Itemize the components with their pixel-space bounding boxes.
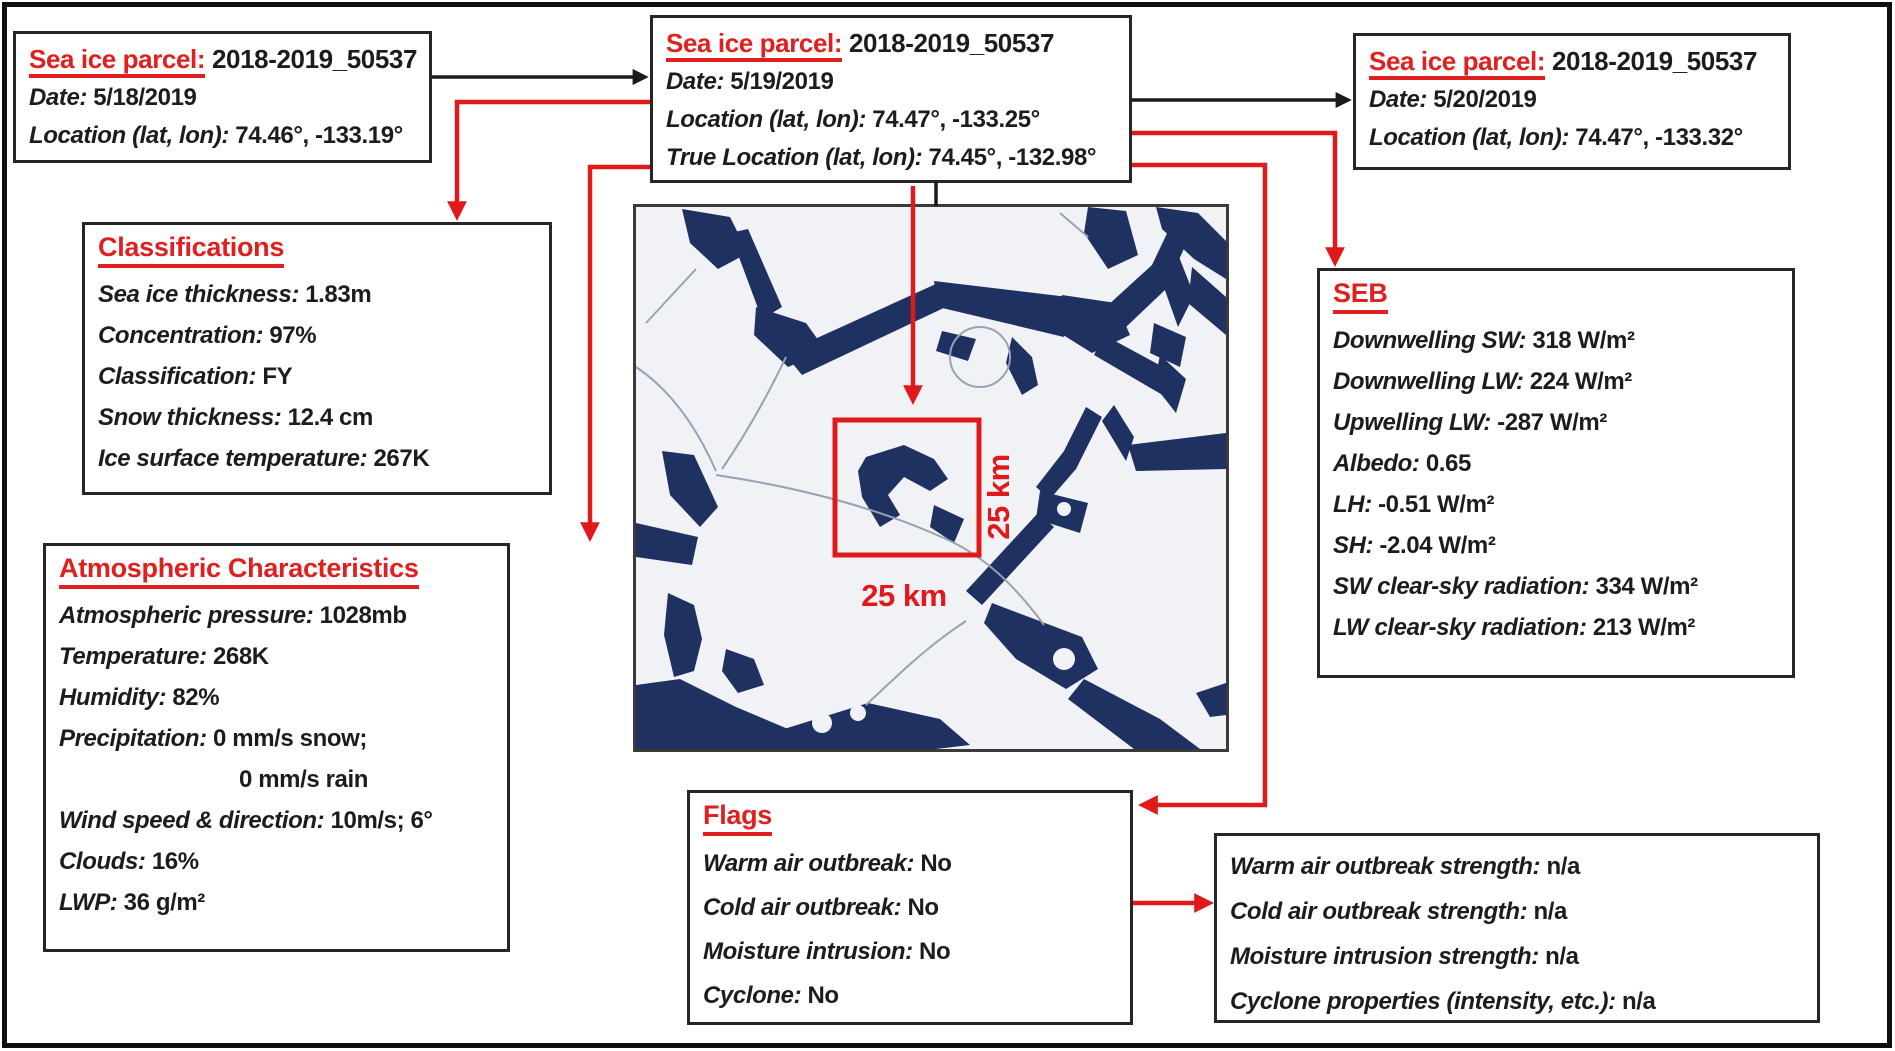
field-row-continuation: 0 mm/s rain	[59, 759, 494, 800]
parcel-title-value: 2018-2019_50537	[849, 28, 1054, 58]
strengths-box: Warm air outbreak strength: n/a Cold air…	[1214, 833, 1820, 1023]
field-row: Classification: FY	[98, 356, 536, 397]
field-row: Humidity: 82%	[59, 677, 494, 718]
field-row: LWP: 36 g/m²	[59, 882, 494, 923]
field-row: Moisture intrusion strength: n/a	[1230, 934, 1804, 979]
field-row: Ice surface temperature: 267K	[98, 438, 536, 479]
parcel-title-label: Sea ice parcel:	[666, 28, 842, 62]
field-row: Cyclone: No	[703, 974, 1117, 1018]
parcel-title-label: Sea ice parcel:	[1369, 46, 1545, 80]
field-row: Cold air outbreak strength: n/a	[1230, 889, 1804, 934]
parcel-title-row: Sea ice parcel: 2018-2019_50537	[1369, 41, 1775, 81]
flags-header: Flags	[703, 798, 772, 836]
field-row: Concentration: 97%	[98, 315, 536, 356]
field-row: Wind speed & direction: 10m/s; 6°	[59, 800, 494, 841]
classifications-header: Classifications	[98, 230, 284, 268]
seb-box: SEB Downwelling SW: 318 W/m² Downwelling…	[1317, 268, 1795, 678]
field-row: Cold air outbreak: No	[703, 886, 1117, 930]
parcel-title-row: Sea ice parcel: 2018-2019_50537	[29, 39, 416, 79]
field-row: Date: 5/19/2019	[666, 63, 1116, 101]
parcel-title-value: 2018-2019_50537	[212, 44, 417, 74]
scale-label-side: 25 km	[981, 451, 1017, 543]
field-row: Date: 5/18/2019	[29, 79, 416, 117]
parcel-box-next: Sea ice parcel: 2018-2019_50537 Date: 5/…	[1353, 33, 1791, 170]
seb-header: SEB	[1333, 276, 1388, 314]
field-row: SW clear-sky radiation: 334 W/m²	[1333, 566, 1779, 607]
field-row: Moisture intrusion: No	[703, 930, 1117, 974]
field-row: Atmospheric pressure: 1028mb	[59, 595, 494, 636]
sea-ice-illustration	[636, 207, 1226, 749]
field-row: LW clear-sky radiation: 213 W/m²	[1333, 607, 1779, 648]
flags-box: Flags Warm air outbreak: No Cold air out…	[687, 790, 1133, 1025]
field-row: Cyclone properties (intensity, etc.): n/…	[1230, 979, 1804, 1024]
field-row: Location (lat, lon): 74.46°, -133.19°	[29, 117, 416, 155]
field-row: Upwelling LW: -287 W/m²	[1333, 402, 1779, 443]
parcel-box-previous: Sea ice parcel: 2018-2019_50537 Date: 5/…	[13, 31, 432, 163]
parcel-title-value: 2018-2019_50537	[1552, 46, 1757, 76]
field-row: Date: 5/20/2019	[1369, 81, 1775, 119]
classifications-box: Classifications Sea ice thickness: 1.83m…	[82, 222, 552, 495]
field-row: Temperature: 268K	[59, 636, 494, 677]
field-row: Precipitation: 0 mm/s snow;	[59, 718, 494, 759]
parcel-box-current: Sea ice parcel: 2018-2019_50537 Date: 5/…	[650, 15, 1132, 183]
field-row: Downwelling SW: 318 W/m²	[1333, 320, 1779, 361]
atmospheric-box: Atmospheric Characteristics Atmospheric …	[43, 543, 510, 952]
field-row: Albedo: 0.65	[1333, 443, 1779, 484]
satellite-image: 25 km 25 km	[633, 204, 1229, 752]
field-row: Location (lat, lon): 74.47°, -133.32°	[1369, 119, 1775, 157]
atmospheric-header: Atmospheric Characteristics	[59, 551, 419, 589]
field-row: Warm air outbreak strength: n/a	[1230, 844, 1804, 889]
scale-label-bottom: 25 km	[858, 578, 950, 614]
field-row: Warm air outbreak: No	[703, 842, 1117, 886]
parcel-title-row: Sea ice parcel: 2018-2019_50537	[666, 23, 1116, 63]
field-row: Snow thickness: 12.4 cm	[98, 397, 536, 438]
field-row: Clouds: 16%	[59, 841, 494, 882]
field-row: Downwelling LW: 224 W/m²	[1333, 361, 1779, 402]
field-row: True Location (lat, lon): 74.45°, -132.9…	[666, 139, 1116, 177]
field-row: Location (lat, lon): 74.47°, -133.25°	[666, 101, 1116, 139]
field-row: LH: -0.51 W/m²	[1333, 484, 1779, 525]
parcel-title-label: Sea ice parcel:	[29, 44, 205, 78]
field-row: Sea ice thickness: 1.83m	[98, 274, 536, 315]
field-row: SH: -2.04 W/m²	[1333, 525, 1779, 566]
figure-canvas: Sea ice parcel: 2018-2019_50537 Date: 5/…	[0, 0, 1895, 1051]
